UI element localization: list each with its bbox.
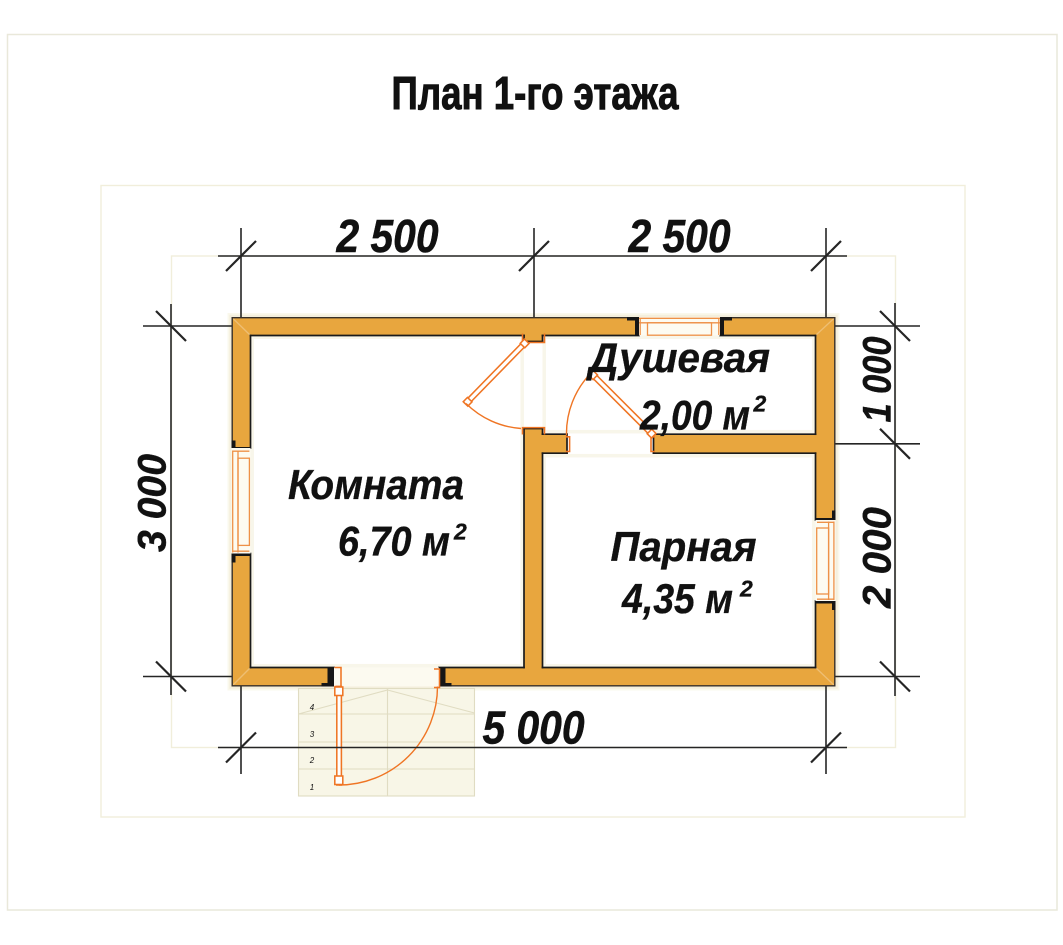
svg-text:2 000: 2 000 [856,507,900,609]
svg-text:4: 4 [310,703,315,712]
svg-text:3 000: 3 000 [131,454,175,552]
svg-text:2 500: 2 500 [336,210,439,262]
svg-text:4,35 м: 4,35 м [621,575,733,622]
svg-text:1: 1 [310,783,314,792]
svg-text:Душевая: Душевая [586,334,770,381]
svg-text:План 1-го этажа: План 1-го этажа [392,67,680,119]
svg-text:2: 2 [309,756,315,765]
svg-text:2 500: 2 500 [628,210,731,262]
svg-text:2,00 м: 2,00 м [639,391,750,438]
svg-text:5 000: 5 000 [483,702,585,754]
svg-text:Парная: Парная [611,523,757,570]
svg-text:2: 2 [753,391,767,417]
svg-text:6,70 м: 6,70 м [338,518,450,565]
svg-text:1 000: 1 000 [856,337,900,423]
svg-text:3: 3 [310,730,315,739]
svg-text:2: 2 [453,519,467,545]
svg-text:2: 2 [739,576,753,602]
svg-text:Комната: Комната [288,461,464,508]
